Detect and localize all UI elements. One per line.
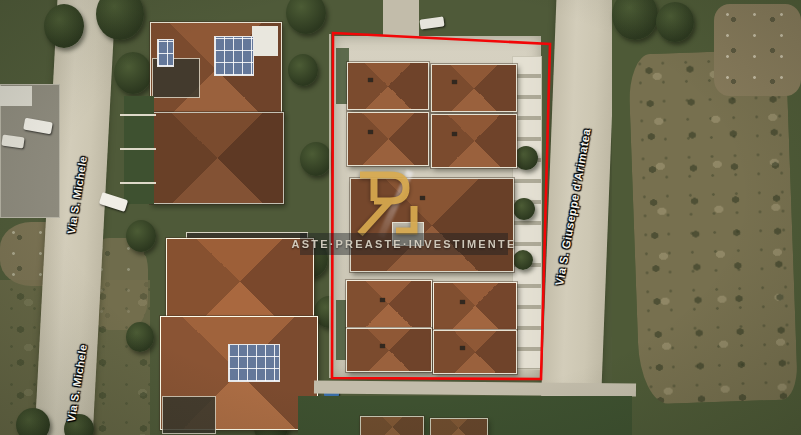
garden-wall (120, 114, 156, 116)
tree (300, 142, 332, 176)
bush (513, 250, 533, 270)
villa-roof (431, 64, 517, 112)
tree (126, 220, 156, 252)
field-east-scrub (628, 49, 798, 404)
chimney (380, 344, 385, 348)
road-via-s-giuseppe (539, 0, 617, 435)
solar-panel-array (228, 344, 280, 382)
villa-roof (431, 114, 517, 168)
chimney (452, 80, 457, 84)
villa-roof (347, 112, 429, 166)
chimney (380, 298, 385, 302)
flat-roof-section (252, 26, 278, 56)
watermark-band: Aste·Preaste·Investimente (300, 233, 508, 255)
west-fence (329, 34, 331, 378)
solar-panel-array (157, 39, 174, 67)
tree (114, 52, 152, 94)
brand-monogram-icon (340, 164, 426, 238)
house-roof (150, 112, 284, 204)
tree (16, 408, 50, 435)
hedge-garden (124, 96, 154, 204)
chimney (460, 346, 465, 350)
villa-roof (433, 282, 517, 330)
house-roof (166, 238, 314, 326)
satellite-map: Aste·Preaste·Investimente Via S. Michele… (0, 0, 801, 435)
white-shed (0, 86, 32, 106)
garden-wall (120, 182, 156, 184)
garden-wall (120, 148, 156, 150)
bush (513, 198, 535, 220)
tree (288, 54, 318, 86)
solar-panel-array (214, 36, 254, 76)
south-path (314, 381, 636, 397)
villa-roof (346, 328, 432, 372)
bush (514, 146, 538, 170)
tree (44, 4, 84, 48)
chimney (452, 132, 457, 136)
villa-roof (346, 280, 432, 328)
house-roof (360, 416, 424, 435)
house-roof (430, 418, 488, 435)
dirt-top-right (714, 4, 801, 96)
chimney (368, 130, 373, 134)
entry-path (383, 0, 419, 38)
chimney (368, 78, 373, 82)
villa-roof (433, 330, 517, 374)
watermark-text: Aste·Preaste·Investimente (292, 238, 517, 250)
tree (286, 0, 326, 34)
dark-roof-section (162, 396, 216, 434)
tree (126, 322, 154, 352)
chimney (460, 300, 465, 304)
brand-monogram (340, 164, 426, 238)
villa-roof (347, 62, 429, 110)
tree (656, 2, 694, 42)
white-car (419, 16, 444, 29)
